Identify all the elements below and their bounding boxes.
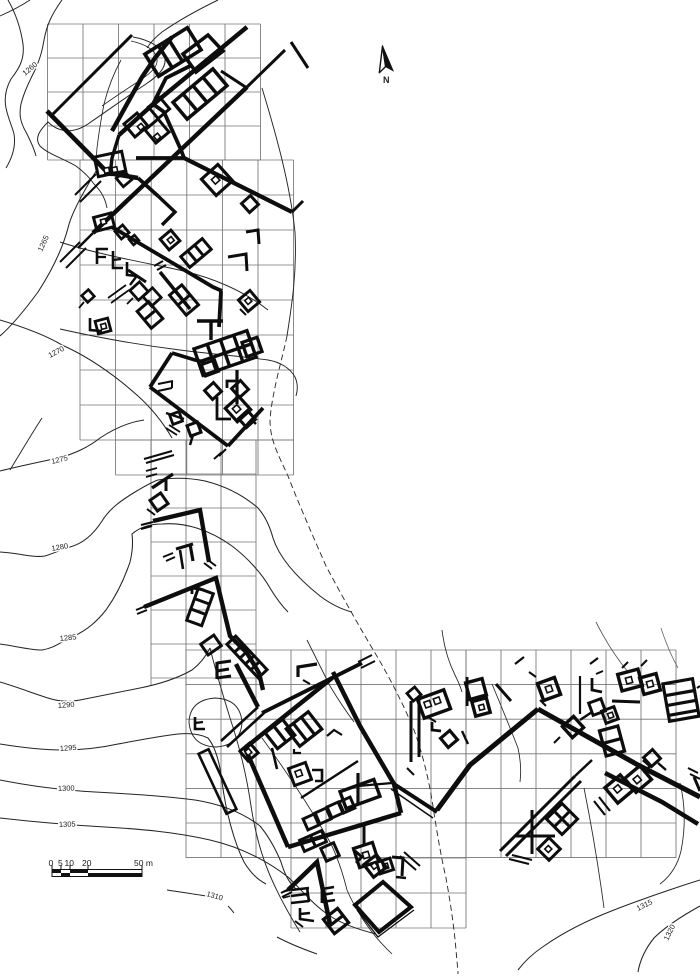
svg-text:50 m: 50 m <box>134 858 153 868</box>
svg-text:1290: 1290 <box>58 700 75 710</box>
svg-text:0: 0 <box>49 858 54 868</box>
svg-text:1305: 1305 <box>59 819 76 829</box>
svg-text:N: N <box>383 75 390 85</box>
svg-text:5: 5 <box>58 858 63 868</box>
svg-text:20: 20 <box>82 858 92 868</box>
svg-text:10: 10 <box>65 858 75 868</box>
svg-text:1285: 1285 <box>59 632 77 643</box>
svg-text:1300: 1300 <box>58 783 75 793</box>
svg-text:1295: 1295 <box>60 743 77 753</box>
